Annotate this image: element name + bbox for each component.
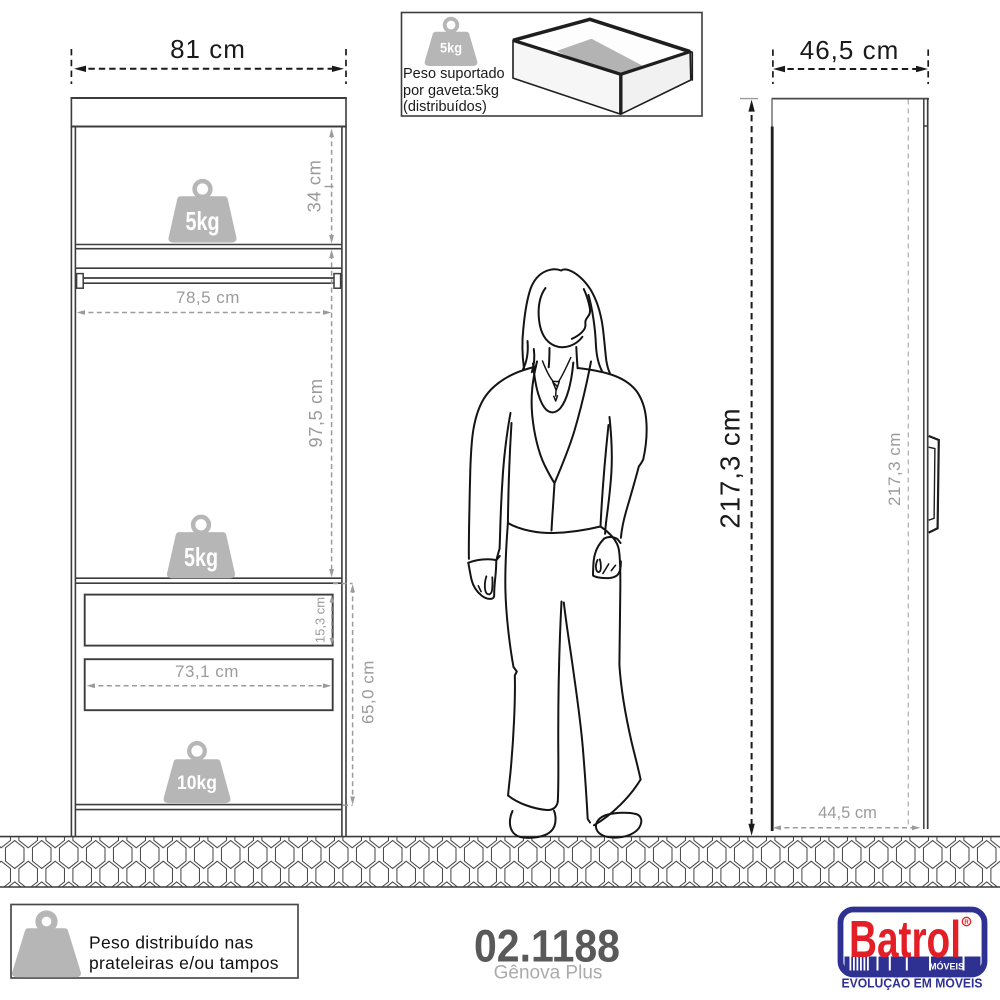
svg-text:34 cm: 34 cm	[304, 160, 325, 213]
svg-text:217,3 cm: 217,3 cm	[885, 432, 904, 506]
svg-text:R: R	[964, 920, 969, 926]
svg-text:Peso suportado: Peso suportado	[403, 66, 505, 82]
svg-text:78,5 cm: 78,5 cm	[176, 288, 240, 307]
svg-text:por gaveta:5kg: por gaveta:5kg	[403, 83, 499, 99]
svg-text:5kg: 5kg	[186, 206, 220, 236]
svg-text:46,5 cm: 46,5 cm	[800, 35, 900, 65]
svg-text:Batrol: Batrol	[849, 911, 961, 969]
svg-text:65,0 cm: 65,0 cm	[359, 660, 378, 724]
svg-text:15,3 cm: 15,3 cm	[313, 597, 328, 643]
svg-text:73,1 cm: 73,1 cm	[175, 662, 239, 681]
svg-text:97,5 cm: 97,5 cm	[305, 378, 326, 447]
svg-text:Peso distribuído nas: Peso distribuído nas	[89, 933, 254, 953]
svg-text:44,5 cm: 44,5 cm	[818, 804, 877, 822]
svg-text:10kg: 10kg	[177, 772, 217, 794]
svg-text:EVOLUÇÃO EM MÓVEIS: EVOLUÇÃO EM MÓVEIS	[842, 976, 983, 991]
svg-text:prateleiras e/ou tampos: prateleiras e/ou tampos	[89, 953, 279, 973]
svg-text:217,3 cm: 217,3 cm	[715, 407, 746, 528]
svg-text:Gênova Plus: Gênova Plus	[494, 963, 603, 984]
svg-text:(distribuídos): (distribuídos)	[403, 99, 487, 115]
svg-text:5kg: 5kg	[440, 40, 462, 56]
svg-text:81 cm: 81 cm	[170, 34, 246, 64]
svg-text:5kg: 5kg	[184, 542, 218, 572]
